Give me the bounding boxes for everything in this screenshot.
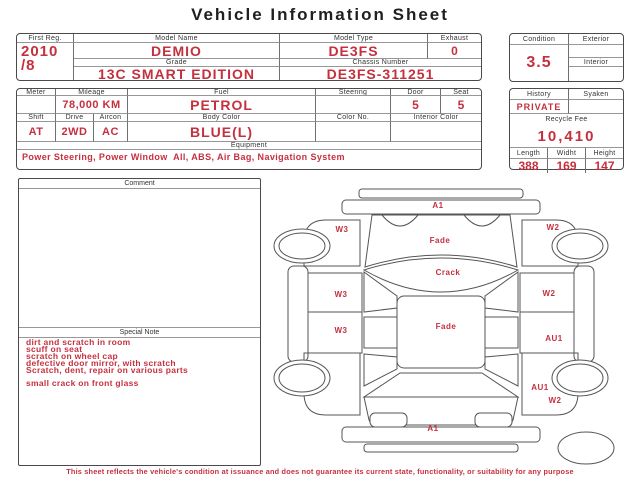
dimensions-subgrid: Length Widht Height 388 169 147 xyxy=(510,148,623,173)
width-label: Widht xyxy=(548,148,586,159)
right-rear-door xyxy=(520,312,574,353)
equipment-label: Equipment xyxy=(17,142,481,150)
comment-special-note-box: Comment Special Note dirt and scratch in… xyxy=(18,178,261,466)
special-note-line: small crack on front glass xyxy=(26,380,257,387)
model-type-label: Model Type xyxy=(280,34,428,43)
shift-label: Shift xyxy=(17,114,56,122)
model-name-label: Model Name xyxy=(74,34,280,43)
damage-label-left-front-fender: W3 xyxy=(336,225,349,234)
interior-label: Interior xyxy=(569,58,623,67)
exterior-label: Exterior xyxy=(569,34,623,45)
mileage-label: Mileage xyxy=(56,89,128,96)
right-b-pillar xyxy=(485,317,518,348)
hood-arch-right xyxy=(464,215,500,226)
drive-label: Drive xyxy=(56,114,94,122)
fuel-value: PETROL xyxy=(128,96,316,114)
model-type-value: DE3FS xyxy=(280,43,428,59)
syaken-value xyxy=(569,100,623,114)
condition-box: Condition Exterior 3.5 Interior xyxy=(509,33,624,82)
damage-label-right-rear-door: AU1 xyxy=(545,334,563,343)
interior-color-label: Interior Color xyxy=(391,114,481,122)
syaken-label: Syaken xyxy=(569,89,623,100)
history-box: History Syaken PRIVATE Recycle Fee 10,41… xyxy=(509,88,624,170)
interior-color-value xyxy=(391,122,481,142)
recycle-subgrid: Recycle Fee 10,410 xyxy=(510,114,623,148)
width-value: 169 xyxy=(548,159,586,173)
damage-label-rear-bumper: A1 xyxy=(427,424,438,433)
first-reg-value: 2010 /8 xyxy=(17,43,74,80)
tail-light-left xyxy=(370,413,407,427)
damage-label-front-bumper: A1 xyxy=(432,201,443,210)
specs-table: Meter Mileage Fuel Steering Door Seat 78… xyxy=(16,88,482,170)
height-value: 147 xyxy=(586,159,623,173)
special-note-body: dirt and scratch in room scuff on seat s… xyxy=(26,339,257,387)
rear-right-wheel xyxy=(552,360,608,396)
damage-label-windshield: Crack xyxy=(436,268,461,277)
interior-value xyxy=(569,67,623,81)
car-damage-diagram: A1 W3 W2 Fade Crack W3 W2 W3 Fade AU1 AU… xyxy=(268,182,640,470)
vehicle-information-sheet: Vehicle Information Sheet First Reg. Mod… xyxy=(0,0,640,480)
meter-label: Meter xyxy=(17,89,56,96)
grade-label: Grade xyxy=(74,59,280,67)
meter-value xyxy=(17,96,56,114)
door-value: 5 xyxy=(391,96,441,114)
left-c-pillar xyxy=(364,354,397,386)
left-b-pillar xyxy=(364,317,397,348)
history-label: History xyxy=(510,89,569,100)
fuel-label: Fuel xyxy=(128,89,316,96)
steering-label: Steering xyxy=(316,89,391,96)
model-name-value: DEMIO xyxy=(74,43,280,59)
damage-label-left-rear-door: W3 xyxy=(335,326,348,335)
condition-label: Condition xyxy=(510,34,569,45)
exterior-value xyxy=(569,45,623,58)
rear-window xyxy=(364,373,518,397)
height-label: Height xyxy=(586,148,623,159)
condition-score: 3.5 xyxy=(510,45,569,81)
right-rocker xyxy=(574,266,594,362)
identity-table: First Reg. Model Name Model Type Exhaust… xyxy=(16,33,482,81)
damage-label-right-front-fender: W2 xyxy=(547,223,560,232)
rear-bumper xyxy=(342,427,540,442)
exhaust-value: 0 xyxy=(428,43,481,59)
aircon-value: AC xyxy=(94,122,128,142)
damage-label-right-rear-fender: AU1 xyxy=(531,383,549,392)
history-subgrid: History Syaken PRIVATE xyxy=(510,89,623,114)
color-no-value xyxy=(316,122,391,142)
damage-label-left-front-door: W3 xyxy=(335,290,348,299)
seat-value: 5 xyxy=(441,96,481,114)
drive-value: 2WD xyxy=(56,122,94,142)
left-rocker xyxy=(288,266,308,362)
steering-value xyxy=(316,96,391,114)
first-reg-label: First Reg. xyxy=(17,34,74,43)
exhaust-label: Exhaust xyxy=(428,34,481,43)
front-right-wheel xyxy=(552,229,608,263)
damage-label-roof: Fade xyxy=(436,322,457,331)
tail-light-right xyxy=(475,413,512,427)
front-left-wheel xyxy=(274,229,330,263)
right-c-pillar xyxy=(485,354,518,386)
body-color-label: Body Color xyxy=(128,114,316,122)
roof xyxy=(397,296,485,368)
front-bumper-trim xyxy=(359,189,523,198)
shift-value: AT xyxy=(17,122,56,142)
door-label: Door xyxy=(391,89,441,96)
rear-bumper-trim xyxy=(364,444,518,452)
damage-label-right-rear-fender-lower: W2 xyxy=(549,396,562,405)
recycle-fee-label: Recycle Fee xyxy=(510,114,623,125)
chassis-label: Chassis Number xyxy=(280,59,481,67)
aircon-label: Aircon xyxy=(94,114,128,122)
first-reg-month: /8 xyxy=(21,59,73,73)
comment-body xyxy=(19,188,260,327)
length-label: Length xyxy=(510,148,548,159)
rear-left-wheel xyxy=(274,360,330,396)
chassis-value: DE3FS-311251 xyxy=(280,67,481,80)
body-color-value: BLUE(L) xyxy=(128,122,316,142)
damage-label-right-front-door: W2 xyxy=(543,289,556,298)
history-value: PRIVATE xyxy=(510,100,569,114)
recycle-fee-value: 10,410 xyxy=(510,125,623,148)
mileage-value: 78,000 KM xyxy=(56,96,128,114)
equipment-value: Power Steering, Power Window All, ABS, A… xyxy=(17,150,481,169)
hood-arch-left xyxy=(382,215,418,226)
spare-wheel xyxy=(558,432,614,464)
special-note-line: Scratch, dent, repair on various parts xyxy=(26,367,257,374)
grade-value: 13C SMART EDITION xyxy=(74,67,280,80)
page-title: Vehicle Information Sheet xyxy=(0,5,640,25)
disclaimer-text: This sheet reflects the vehicle's condit… xyxy=(0,467,640,476)
color-no-label: Color No. xyxy=(316,114,391,122)
damage-label-hood: Fade xyxy=(430,236,451,245)
length-value: 388 xyxy=(510,159,548,173)
seat-label: Seat xyxy=(441,89,481,96)
